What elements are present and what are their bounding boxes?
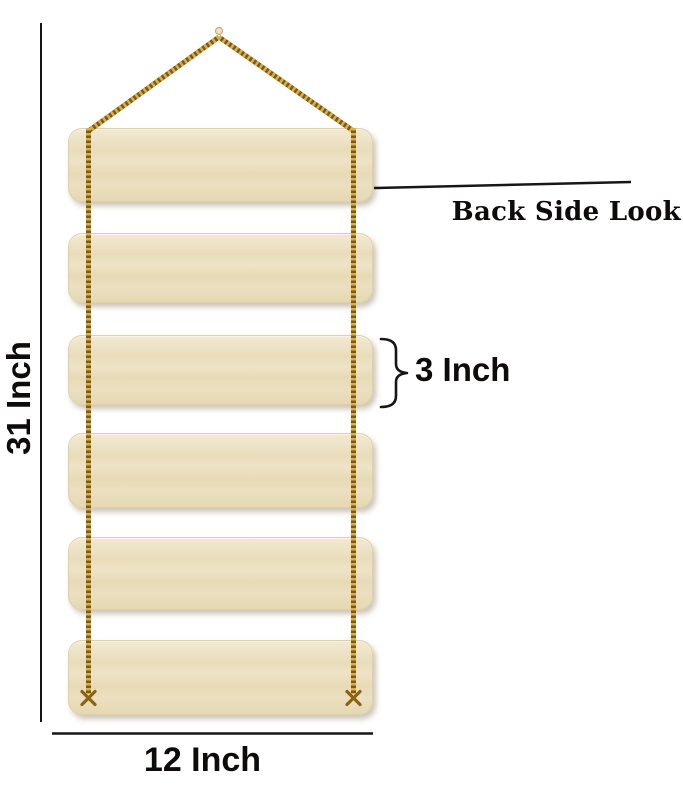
rope-top-left bbox=[89, 37, 220, 131]
plank-height-label: 3 Inch bbox=[415, 351, 510, 389]
height-dimension-label-wrap: 31 Inch bbox=[0, 338, 37, 458]
back-side-look-label: Back Side Look bbox=[452, 197, 681, 227]
plank-height-brace bbox=[381, 339, 407, 407]
rope-top-right bbox=[219, 37, 354, 131]
product-diagram: Back Side Look 3 Inch 12 Inch 31 Inch bbox=[0, 0, 683, 800]
wooden-plank bbox=[68, 233, 373, 303]
wooden-plank bbox=[68, 128, 373, 202]
wooden-plank bbox=[68, 537, 373, 610]
width-dimension-label: 12 Inch bbox=[95, 742, 310, 779]
caption-pointer-line bbox=[374, 182, 631, 188]
wooden-plank bbox=[68, 640, 373, 715]
rope-top-triangle-icon bbox=[89, 37, 354, 131]
height-dimension-label: 31 Inch bbox=[0, 341, 38, 455]
wooden-plank bbox=[68, 433, 373, 508]
rope-top-right-highlight bbox=[219, 37, 354, 131]
rope-top-left-highlight bbox=[89, 37, 220, 131]
hanging-nail-icon bbox=[216, 28, 223, 35]
wooden-plank bbox=[68, 335, 373, 405]
